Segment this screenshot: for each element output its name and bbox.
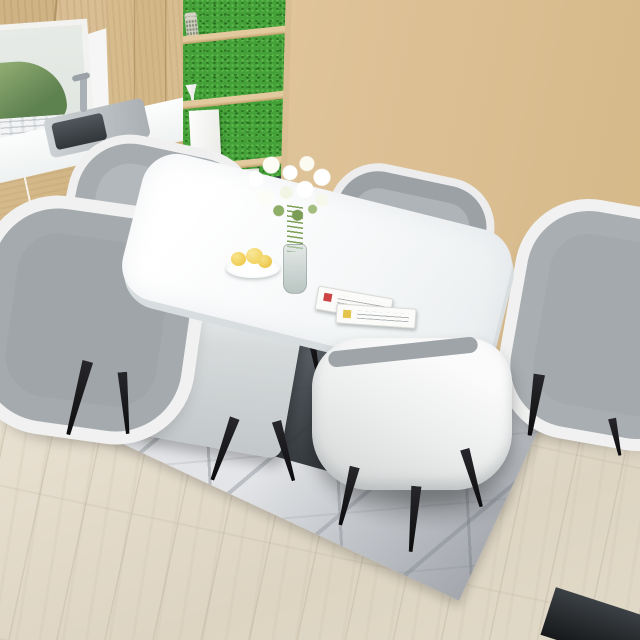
leaning-white-board: [189, 109, 221, 159]
scene-room: [0, 0, 640, 640]
chair-cushion-top: [328, 336, 479, 368]
glass-vase: [283, 244, 307, 294]
faucet: [80, 76, 87, 112]
lemon: [258, 255, 272, 268]
magazine-cover-mark: [323, 293, 332, 302]
sink-basin: [51, 113, 108, 151]
lily-bouquet: [243, 156, 337, 232]
lemon: [231, 252, 246, 266]
magazine-cover-mark: [343, 310, 352, 319]
magazine-text-lines: [357, 311, 409, 323]
chair-near: [312, 338, 512, 490]
